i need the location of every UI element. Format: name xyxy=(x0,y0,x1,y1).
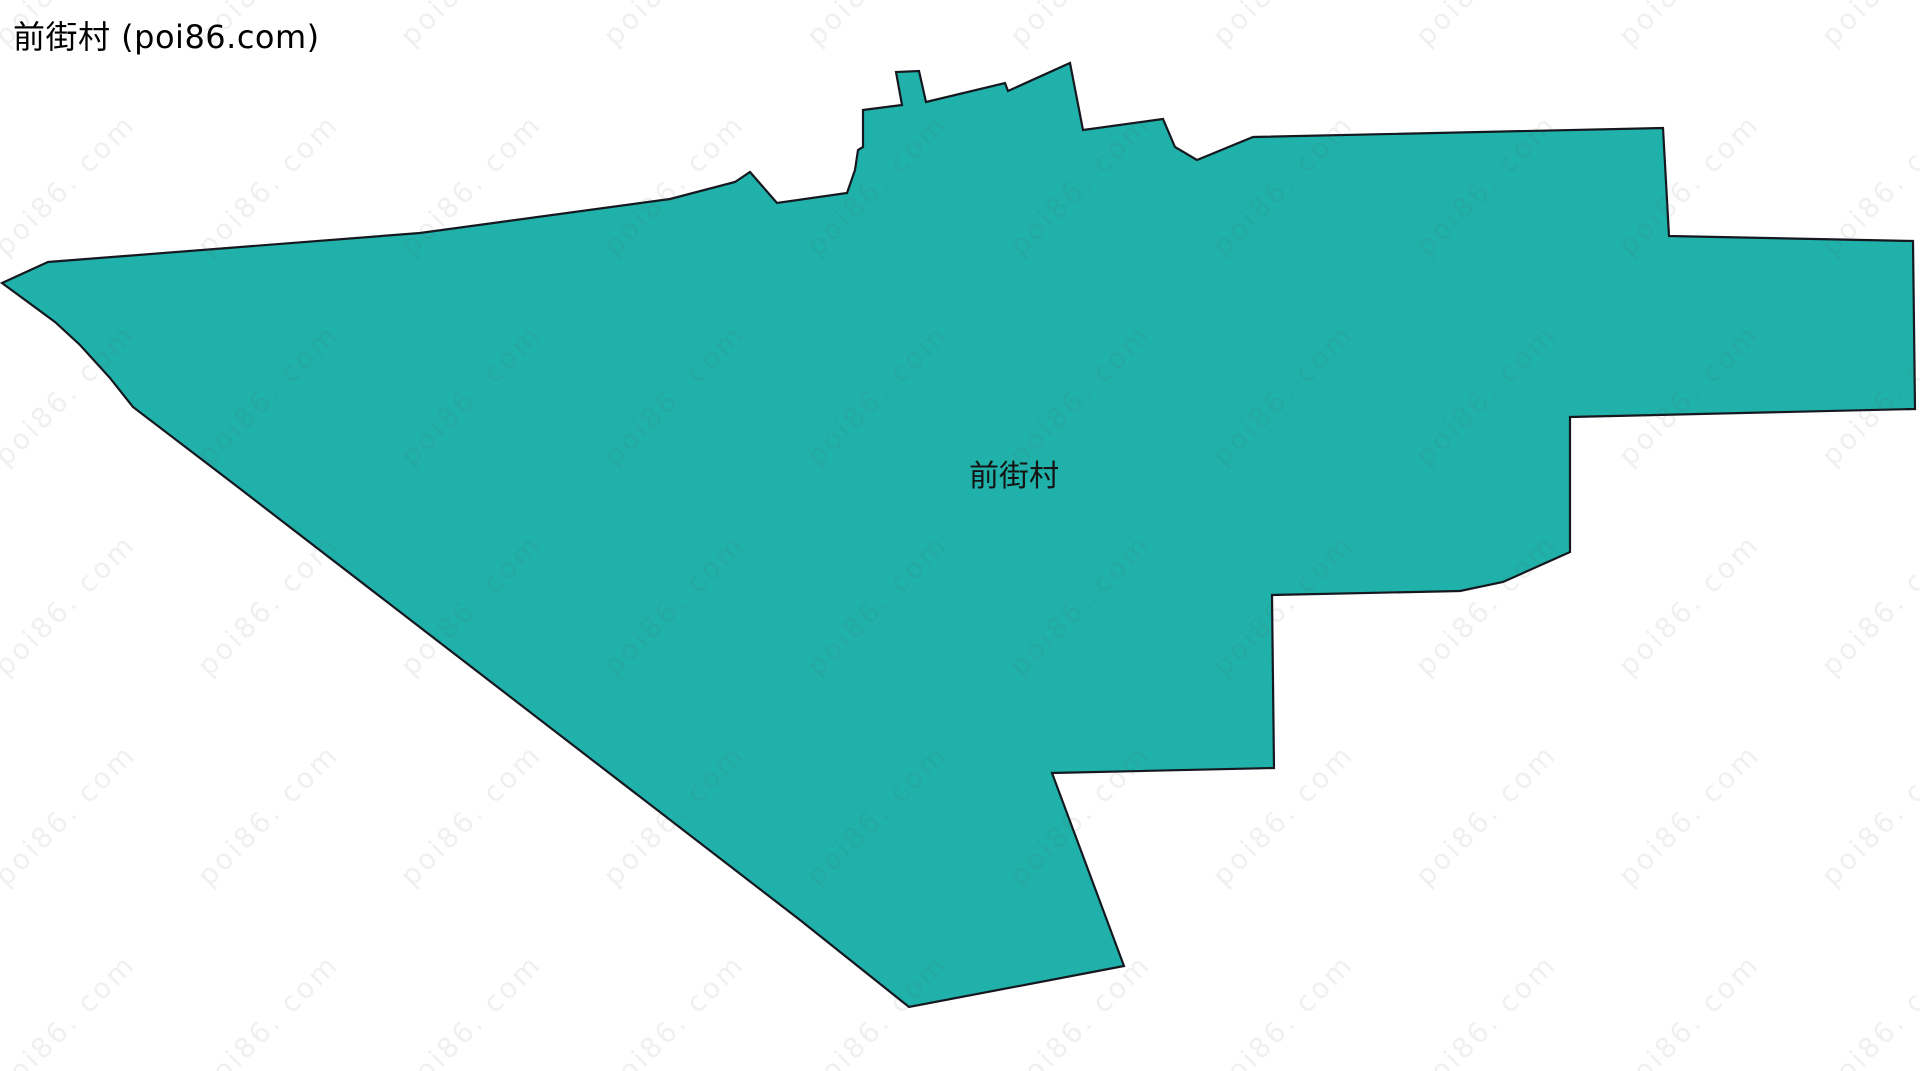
region-map: 前街村 xyxy=(0,0,1920,1071)
page-title: 前街村 (poi86.com) xyxy=(13,12,320,58)
region-label: 前街村 xyxy=(969,459,1059,494)
map-page: 前街村 (poi86.com) 前街村 poi86. compoi86. com… xyxy=(0,0,1920,1071)
region-polygon xyxy=(2,63,1915,1007)
